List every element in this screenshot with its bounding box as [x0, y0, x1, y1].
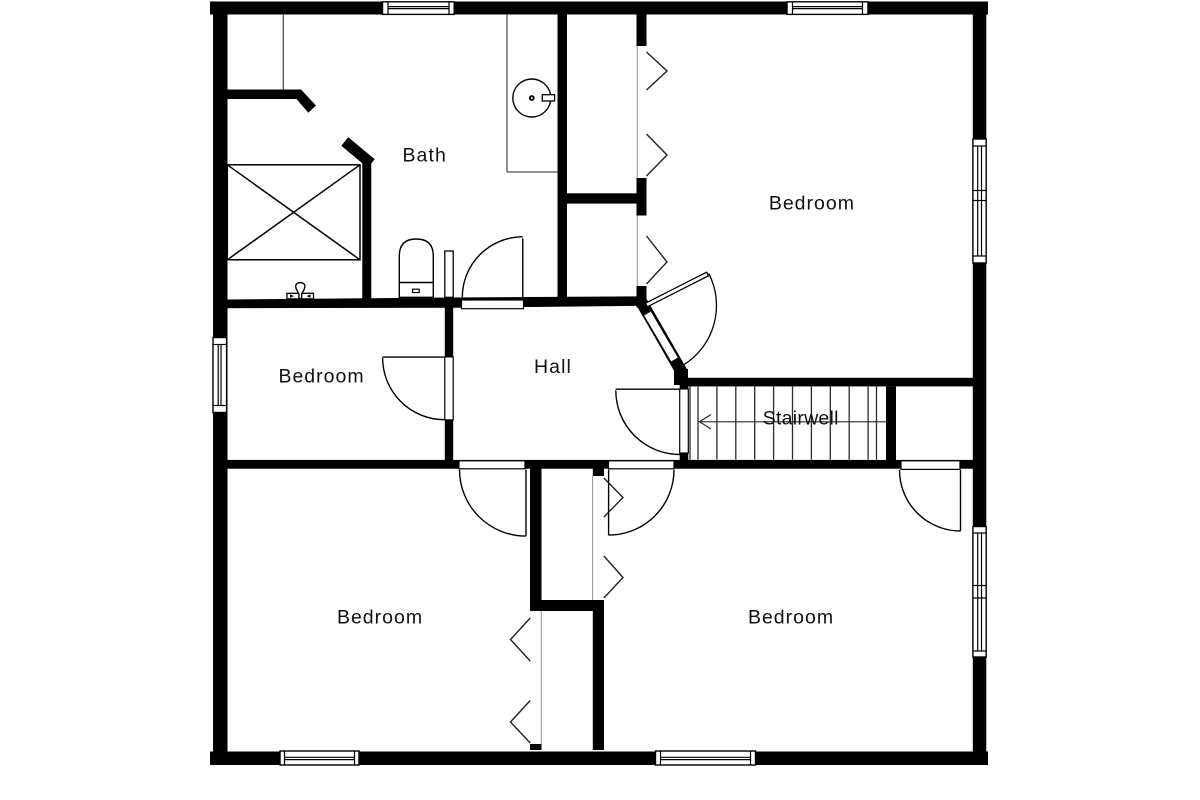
- svg-text:Bedroom: Bedroom: [769, 193, 855, 215]
- svg-text:Bedroom: Bedroom: [278, 366, 364, 388]
- svg-text:Bath: Bath: [402, 145, 447, 167]
- svg-text:Bedroom: Bedroom: [337, 607, 423, 629]
- svg-text:Bedroom: Bedroom: [748, 607, 834, 629]
- svg-text:Stairwell: Stairwell: [763, 408, 839, 430]
- svg-text:Hall: Hall: [534, 356, 572, 378]
